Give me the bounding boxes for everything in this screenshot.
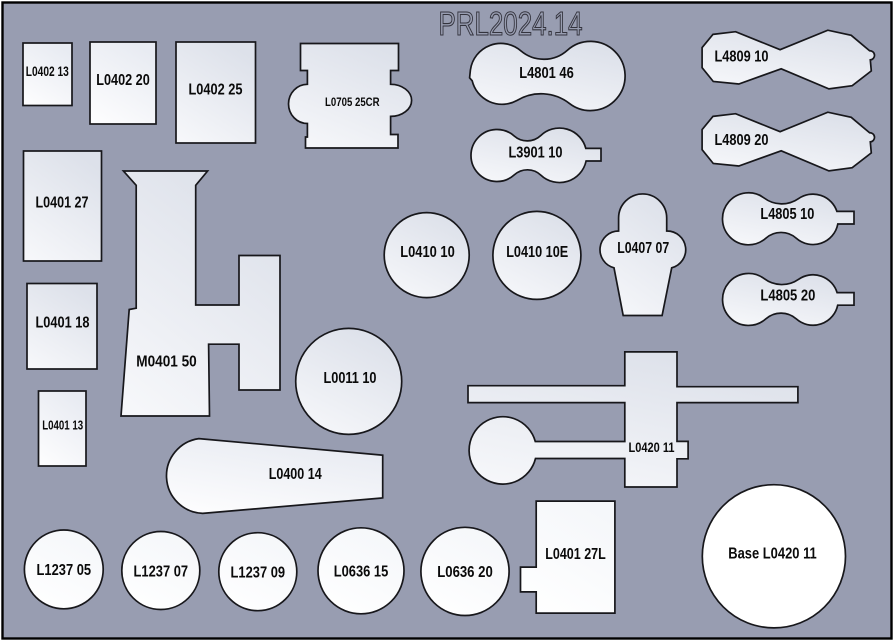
- svg-text:L3901 10: L3901 10: [509, 144, 563, 161]
- svg-text:L0401 18: L0401 18: [36, 314, 90, 331]
- svg-text:L0410 10: L0410 10: [400, 244, 455, 261]
- svg-text:L4805 20: L4805 20: [760, 288, 815, 305]
- svg-text:L4809 20: L4809 20: [715, 132, 769, 149]
- svg-text:L0636 15: L0636 15: [334, 564, 389, 581]
- svg-text:L1237 05: L1237 05: [37, 562, 92, 579]
- svg-text:L0402 13: L0402 13: [26, 63, 69, 79]
- svg-text:L0420 11: L0420 11: [629, 439, 675, 455]
- svg-text:L0705 25CR: L0705 25CR: [325, 95, 380, 109]
- svg-text:L4805 10: L4805 10: [760, 206, 814, 223]
- svg-text:L0401 27L: L0401 27L: [545, 546, 606, 563]
- svg-text:M0401 50: M0401 50: [136, 354, 197, 371]
- svg-text:L0011 10: L0011 10: [324, 370, 377, 387]
- svg-text:L0402 25: L0402 25: [189, 82, 243, 99]
- svg-text:L0407 07: L0407 07: [617, 240, 669, 257]
- svg-text:L0400 14: L0400 14: [269, 466, 322, 483]
- svg-text:L4801 46: L4801 46: [519, 65, 574, 82]
- svg-text:L0402 20: L0402 20: [96, 72, 150, 89]
- svg-text:L1237 07: L1237 07: [134, 563, 189, 580]
- svg-text:L0401 13: L0401 13: [42, 418, 83, 433]
- svg-text:L4809 10: L4809 10: [715, 49, 769, 66]
- svg-text:PRL2024.14: PRL2024.14: [439, 5, 583, 42]
- svg-text:L0636 20: L0636 20: [437, 564, 493, 581]
- svg-text:L0401 27: L0401 27: [36, 195, 89, 212]
- svg-text:Base L0420 11: Base L0420 11: [728, 546, 817, 563]
- svg-text:L0410 10E: L0410 10E: [506, 244, 568, 261]
- svg-text:L1237 09: L1237 09: [231, 565, 286, 582]
